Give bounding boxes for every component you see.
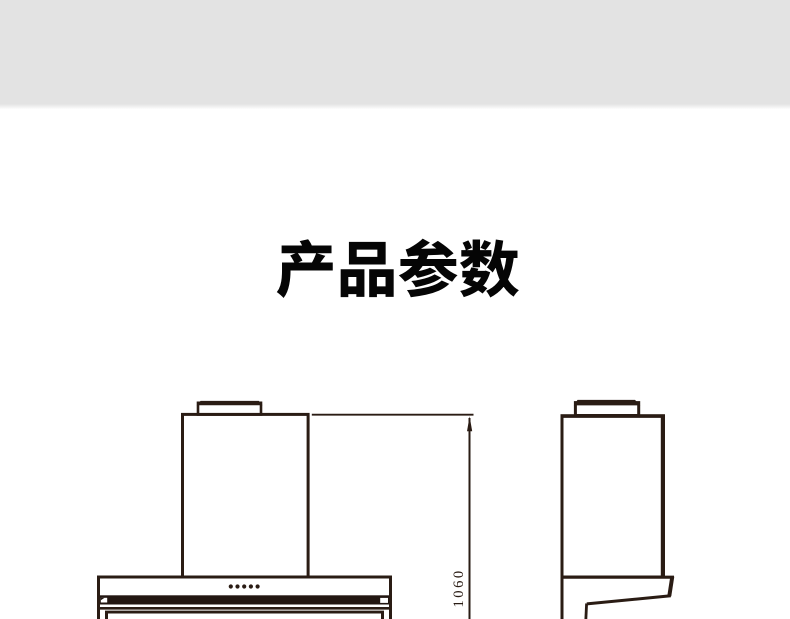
svg-text:1060: 1060 [451, 568, 467, 607]
